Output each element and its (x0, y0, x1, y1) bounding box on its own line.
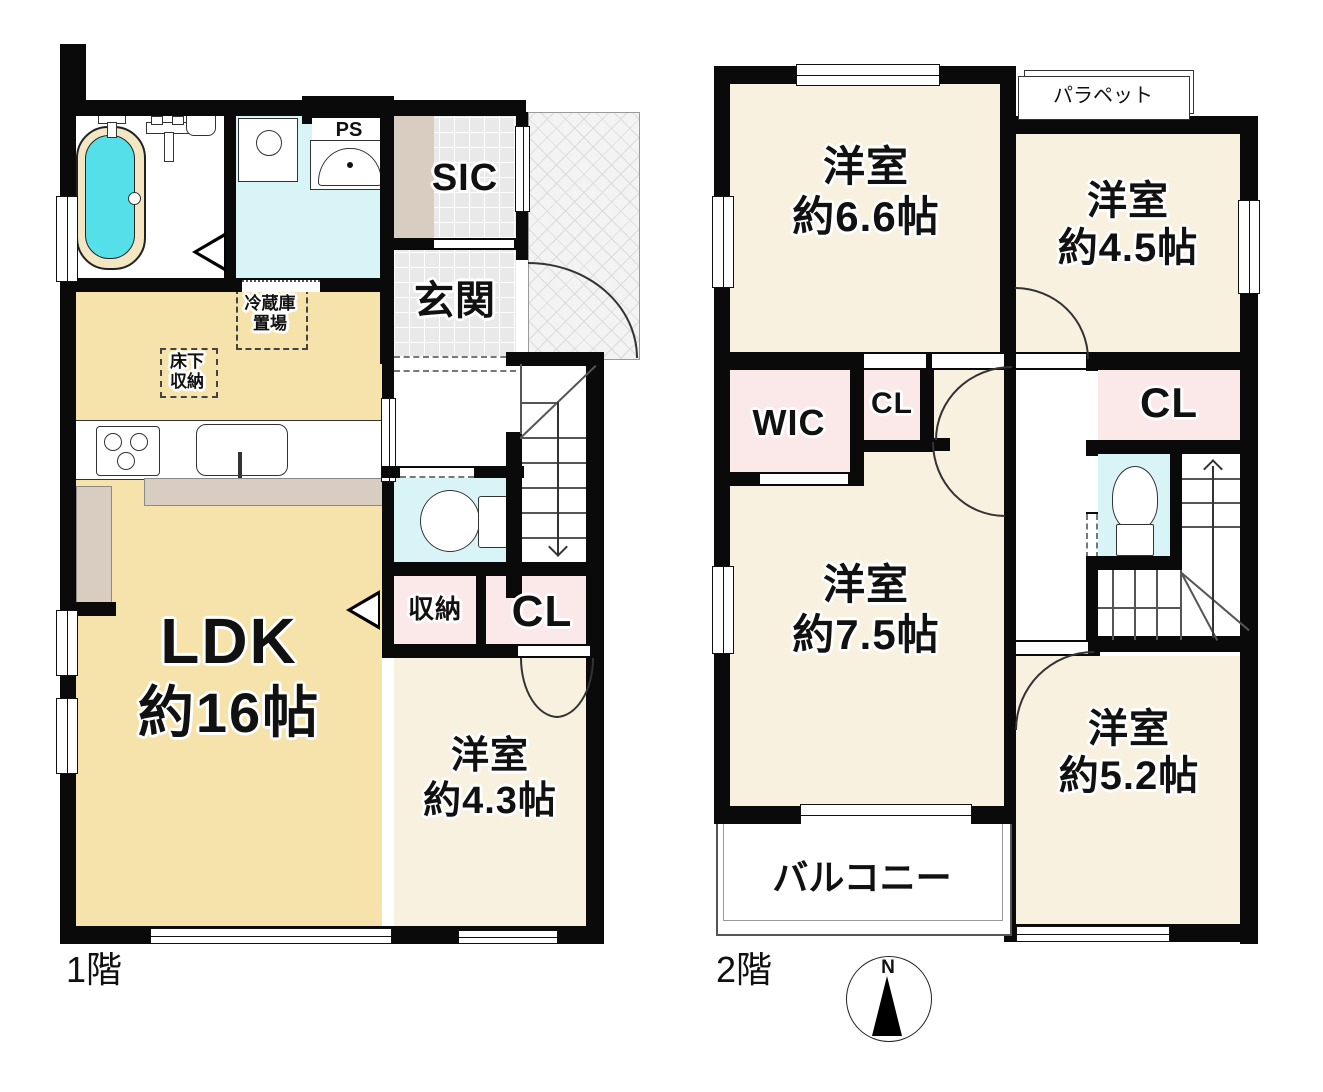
shunou-label: 収納 (394, 594, 476, 625)
bedroom66-door-gap (932, 354, 1004, 368)
entrance-door-gap (516, 260, 528, 356)
toilet-door-1f (400, 468, 474, 478)
window (150, 928, 392, 944)
wall (476, 576, 486, 646)
wall (382, 562, 604, 576)
sink-tap (238, 452, 242, 478)
window (1016, 926, 1170, 942)
ps-text: PS (336, 119, 363, 141)
window (796, 64, 940, 86)
compass-needle-icon (872, 976, 902, 1036)
window (56, 698, 78, 774)
shower-stem (164, 132, 174, 162)
bedroom43-door-gap (518, 646, 590, 656)
genkan-label: 玄関 (394, 278, 516, 325)
bedroom66-label: 洋室 約6.6帖 (730, 142, 1002, 241)
stair-edge (520, 364, 522, 434)
bedroom45-label: 洋室 約4.5帖 (1014, 178, 1242, 272)
stair-tread (520, 402, 558, 404)
floor1-label: 1階 (66, 950, 122, 990)
wall (60, 100, 526, 116)
window (56, 196, 78, 282)
balcony-label: バルコニー (716, 858, 1008, 898)
kitchen-sink (196, 424, 288, 476)
stair-tread (522, 537, 586, 539)
bedroom75-label: 洋室 約7.5帖 (728, 560, 1004, 659)
kitchen-cupboard (76, 486, 112, 606)
toilet-tank-2f (1116, 524, 1154, 556)
stair-tread (1182, 502, 1240, 504)
cl-left-opening (858, 354, 926, 368)
underfloor-label: 床下 収納 (152, 352, 222, 392)
stair-arrow-shaft (557, 402, 559, 554)
wall (1086, 556, 1182, 570)
ldk-label: LDK 約16帖 (76, 604, 382, 746)
window (458, 930, 558, 944)
stair-tread (522, 487, 586, 489)
stair-tread (1134, 570, 1136, 640)
stair-tread (1098, 607, 1182, 609)
bath-faucet-stem (107, 122, 117, 138)
stair-tread (1180, 570, 1182, 640)
wall (60, 44, 86, 104)
cl-right-label: CL (1098, 378, 1240, 428)
window (56, 610, 78, 676)
stair-tread (522, 462, 586, 464)
stove-burner-3 (117, 452, 135, 470)
wall (1170, 454, 1182, 560)
toilet-door-2f (1086, 456, 1098, 512)
parapet-label: パラペット (1018, 85, 1188, 107)
kitchen-counter-edge (144, 478, 384, 506)
bath-door-marker-inner (198, 237, 224, 267)
sic-label: SIC (414, 156, 516, 201)
wic-label: WIC (728, 402, 850, 444)
floor2-label: 2階 (716, 950, 772, 990)
bedroom52-label: 洋室 約5.2帖 (1016, 706, 1242, 800)
stair-tread (520, 437, 586, 439)
shower-knob-right (172, 116, 184, 125)
sic-door (515, 126, 530, 212)
sic-genkan-opening (434, 240, 514, 248)
toilet-bowl-2f (1112, 466, 1158, 530)
shower-knob-left (151, 116, 163, 125)
toilet-door-marker-2f (1086, 514, 1098, 558)
stair-tread (1112, 570, 1114, 640)
ps-label: PS (312, 119, 386, 141)
wall (1086, 440, 1258, 454)
fridge-label: 冷蔵庫 置場 (226, 294, 314, 334)
bedroom43-label: 洋室 約4.3帖 (394, 734, 586, 824)
sliding-door-gap (242, 280, 320, 292)
bathtub-handle (128, 192, 141, 205)
cl-right-opening (1086, 370, 1098, 442)
toilet-bowl-1f (420, 490, 480, 552)
stove-burner-1 (104, 433, 122, 451)
basin-drain (347, 162, 353, 168)
cl-left-label: CL (860, 386, 924, 421)
floor-plan: PS SIC 玄関 冷蔵庫 置場 床下 収納 LDK 約16帖 収納 CL 洋室… (0, 0, 1323, 1092)
wall (60, 278, 382, 292)
cl-label-1f: CL (486, 586, 598, 638)
stair-tread (522, 512, 586, 514)
hallway-floor-1f (394, 370, 508, 466)
stair-tread (1182, 478, 1240, 480)
toilet-tank-1f (478, 496, 508, 548)
genkan-step (394, 356, 516, 372)
stair-tread (1182, 526, 1240, 528)
stair-tread (1156, 570, 1158, 640)
washing-machine-drum (256, 130, 282, 156)
balcony-slider (800, 804, 972, 826)
wic-door-gap (760, 474, 848, 484)
stove-burner-2 (130, 433, 148, 451)
stair-arrow-shaft (1212, 466, 1214, 638)
